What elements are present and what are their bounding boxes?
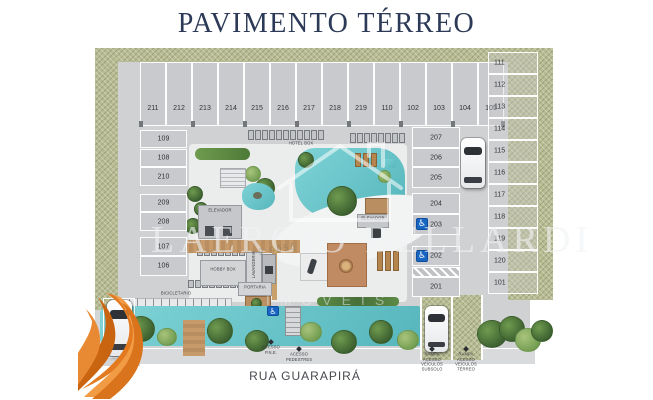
storage-boxes-row xyxy=(248,130,324,140)
car-top-view xyxy=(425,306,448,352)
parking-space: 217 xyxy=(296,62,322,126)
parking-space: 111 xyxy=(488,52,538,74)
access-pedestrian-label: ACESSO PEDESTRES xyxy=(286,352,312,362)
floor-plan-page: PAVIMENTO TÉRREO ELEVADOR xyxy=(0,0,653,400)
column-marker xyxy=(347,121,351,127)
street-name: RUA GUARAPIRÁ xyxy=(170,369,440,383)
parking-space: 210 xyxy=(140,167,187,186)
column-marker xyxy=(139,121,143,127)
parking-space: 113 xyxy=(488,96,538,118)
parking-space: 108 xyxy=(140,149,187,167)
front-desk-label: PORTARIA xyxy=(239,285,270,290)
bike-parking-label: BICICLETÁRIO xyxy=(153,291,200,296)
parking-space: 213 xyxy=(192,62,218,126)
parking-space: 109 xyxy=(140,130,187,148)
parking-space: 219 xyxy=(348,62,374,126)
landscape-strip-top xyxy=(95,48,553,62)
ramp-ground-label: RAMPA ACESSO VEÍCULOS TÉRREO xyxy=(453,352,479,372)
parking-space: 112 xyxy=(488,74,538,96)
pond-rock xyxy=(253,192,262,199)
parking-space: 115 xyxy=(488,140,538,162)
parking-space: 104 xyxy=(452,62,478,126)
parking-space: 101 xyxy=(488,272,538,294)
wood-deck xyxy=(183,320,205,356)
parking-space: 110 xyxy=(374,62,400,126)
parking-space: 117 xyxy=(488,184,538,206)
page-title: PAVIMENTO TÉRREO xyxy=(0,8,653,40)
hobby-box-label: HOBBY BOX xyxy=(207,267,238,272)
parking-space: 206 xyxy=(412,148,460,167)
hedge xyxy=(195,148,250,160)
parking-space: 116 xyxy=(488,162,538,184)
column-marker xyxy=(191,121,195,127)
palm xyxy=(300,322,322,342)
parking-space: 102 xyxy=(400,62,426,126)
parking-space: 205 xyxy=(412,167,460,188)
parking-space: 211 xyxy=(140,62,166,126)
parking-space: 212 xyxy=(166,62,192,126)
column-marker xyxy=(243,121,247,127)
stairs xyxy=(220,168,246,188)
parking-space: 114 xyxy=(488,118,538,140)
elevator-doors xyxy=(265,266,273,274)
watermark-tagline: IMÓVEIS xyxy=(240,292,420,308)
orange-ribbon-decoration xyxy=(76,293,158,400)
palm xyxy=(207,318,233,344)
palm xyxy=(397,330,419,350)
palm xyxy=(369,320,393,344)
access-pne-label: ACESSO P.N.E. xyxy=(258,345,284,355)
parking-space: 207 xyxy=(412,127,460,148)
pool-stairs xyxy=(285,306,301,336)
palm xyxy=(157,328,177,346)
parking-space: 209 xyxy=(140,194,187,212)
house-logo-icon xyxy=(265,140,415,225)
bush xyxy=(531,320,553,342)
parking-space: 214 xyxy=(218,62,244,126)
watermark-name: LAERCIO BELLARDI xyxy=(98,218,646,262)
car-top-view xyxy=(461,138,485,188)
elevator-label: ELEVADOR xyxy=(204,208,235,213)
column-marker xyxy=(295,121,299,127)
column-marker xyxy=(399,121,403,127)
parking-space: 218 xyxy=(322,62,348,126)
parking-space: 216 xyxy=(270,62,296,126)
parking-space: 103 xyxy=(426,62,452,126)
palm xyxy=(331,330,357,354)
bush xyxy=(187,186,203,202)
no-parking-stripes xyxy=(412,267,460,277)
parking-space: 204 xyxy=(412,193,460,214)
landscape-strip-left xyxy=(95,48,118,310)
parking-space: 215 xyxy=(244,62,270,126)
